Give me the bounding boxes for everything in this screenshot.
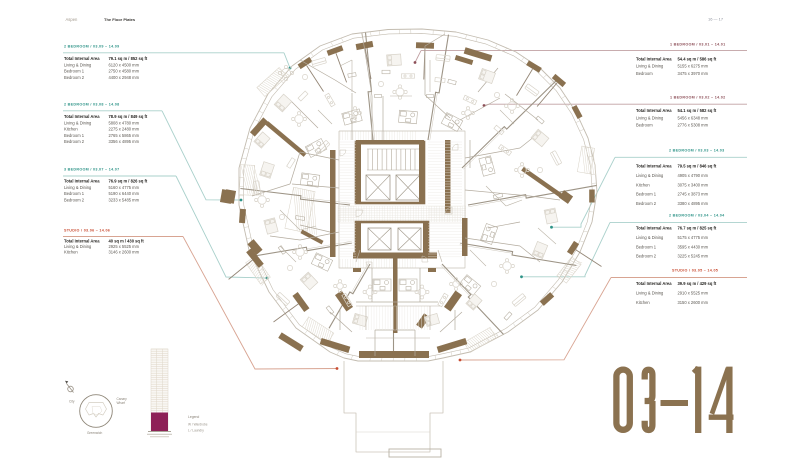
svg-text:Bedroom 1: Bedroom 1: [64, 133, 85, 138]
svg-text:Bedroom 2: Bedroom 2: [636, 201, 657, 206]
svg-text:Living & Dining: Living & Dining: [636, 235, 664, 240]
svg-text:2910 x 5525 mm: 2910 x 5525 mm: [678, 291, 709, 296]
svg-text:2275 x 2480 mm: 2275 x 2480 mm: [109, 127, 140, 132]
svg-text:Legend: Legend: [188, 415, 199, 419]
svg-text:Total Internal Area: Total Internal Area: [636, 164, 672, 169]
svg-text:2 BEDROOM / 03.04 – 14.04: 2 BEDROOM / 03.04 – 14.04: [669, 214, 725, 218]
svg-text:40 sq m / 430 sq ft: 40 sq m / 430 sq ft: [109, 238, 145, 243]
svg-text:79.5 sq m / 846 sq ft: 79.5 sq m / 846 sq ft: [678, 164, 717, 169]
svg-text:3233 x 5485 mm: 3233 x 5485 mm: [109, 197, 140, 202]
svg-text:The Floor Plates: The Floor Plates: [104, 17, 136, 22]
svg-text:3475 x 3970 mm: 3475 x 3970 mm: [678, 71, 709, 76]
svg-text:1 BEDROOM / 03.02 – 14.02: 1 BEDROOM / 03.02 – 14.02: [670, 96, 725, 100]
svg-text:Living & Dining: Living & Dining: [64, 120, 92, 125]
svg-text:3146 x 2600 mm: 3146 x 2600 mm: [109, 250, 140, 255]
svg-text:54.1 sq m / 582 sq ft: 54.1 sq m / 582 sq ft: [678, 108, 717, 113]
svg-text:Bedroom 1: Bedroom 1: [636, 244, 657, 249]
svg-text:2 BEDROOM / 03.08 – 14.08: 2 BEDROOM / 03.08 – 14.08: [64, 102, 119, 106]
svg-text:Living & Dining: Living & Dining: [636, 291, 664, 296]
svg-text:3225 x 5245 mm: 3225 x 5245 mm: [678, 254, 709, 259]
svg-text:4400 x 2948 mm: 4400 x 2948 mm: [109, 75, 140, 80]
svg-text:Bedroom 2: Bedroom 2: [64, 75, 85, 80]
svg-text:3 BEDROOM / 03.07 – 14.07: 3 BEDROOM / 03.07 – 14.07: [64, 168, 119, 172]
svg-text:39.9 sq m / 429 sq ft: 39.9 sq m / 429 sq ft: [678, 281, 717, 286]
svg-text:5456 x 6348 mm: 5456 x 6348 mm: [678, 115, 709, 120]
svg-text:Bedroom 1: Bedroom 1: [636, 192, 657, 197]
svg-text:Total Internal Area: Total Internal Area: [636, 281, 672, 286]
svg-text:4905 x 4790 mm: 4905 x 4790 mm: [678, 173, 709, 178]
svg-text:Kitchen: Kitchen: [64, 250, 78, 255]
svg-text:Living & Dining: Living & Dining: [64, 62, 92, 67]
svg-text:5175 x 4775 mm: 5175 x 4775 mm: [678, 235, 709, 240]
svg-text:Kitchen: Kitchen: [636, 182, 650, 187]
svg-text:Total Internal Area: Total Internal Area: [64, 56, 100, 61]
svg-text:3356 x 4895 mm: 3356 x 4895 mm: [109, 139, 140, 144]
svg-text:Bedroom 1: Bedroom 1: [64, 69, 85, 74]
svg-text:Total Internal Area: Total Internal Area: [636, 108, 672, 113]
svg-text:78.9 sq m / 849 sq ft: 78.9 sq m / 849 sq ft: [109, 114, 148, 119]
svg-text:2765 x 5865 mm: 2765 x 5865 mm: [109, 133, 140, 138]
svg-text:STUDIO / 03.05 – 14.05: STUDIO / 03.05 – 14.05: [672, 269, 718, 273]
svg-text:1 BEDROOM / 03.01 – 14.01: 1 BEDROOM / 03.01 – 14.01: [670, 42, 725, 46]
svg-text:54.4 sq m / 586 sq ft: 54.4 sq m / 586 sq ft: [678, 57, 717, 62]
svg-text:City: City: [69, 400, 75, 404]
svg-text:3150 x 2600 mm: 3150 x 2600 mm: [678, 300, 709, 305]
svg-text:76.9 sq m / 826 sq ft: 76.9 sq m / 826 sq ft: [109, 179, 148, 184]
svg-text:W / Wardrobe: W / Wardrobe: [188, 423, 208, 427]
svg-text:L / Laundry: L / Laundry: [188, 429, 204, 433]
svg-text:Living & Dining: Living & Dining: [64, 244, 92, 249]
svg-text:Total Internal Area: Total Internal Area: [636, 57, 672, 62]
svg-text:79.1 sq m / 852 sq ft: 79.1 sq m / 852 sq ft: [109, 56, 148, 61]
svg-text:Bedroom: Bedroom: [636, 123, 653, 128]
svg-text:Aspen: Aspen: [66, 17, 79, 22]
svg-text:Wharf: Wharf: [117, 401, 126, 405]
svg-text:6120 x 4500 mm: 6120 x 4500 mm: [109, 62, 140, 67]
svg-text:Total Internal Area: Total Internal Area: [64, 179, 100, 184]
svg-text:3595 x 4430 mm: 3595 x 4430 mm: [678, 244, 709, 249]
svg-text:Bedroom 2: Bedroom 2: [64, 197, 85, 202]
svg-text:Bedroom 1: Bedroom 1: [64, 191, 85, 196]
svg-text:Total Internal Area: Total Internal Area: [64, 114, 100, 119]
svg-text:Kitchen: Kitchen: [636, 300, 650, 305]
svg-text:76.7 sq m / 825 sq ft: 76.7 sq m / 825 sq ft: [678, 226, 717, 231]
svg-text:STUDIO / 03.06 – 14.06: STUDIO / 03.06 – 14.06: [64, 228, 110, 232]
svg-text:Living & Dining: Living & Dining: [636, 115, 664, 120]
svg-text:2745 x 3873 mm: 2745 x 3873 mm: [678, 192, 709, 197]
svg-text:Bedroom 2: Bedroom 2: [636, 254, 657, 259]
svg-text:Kitchen: Kitchen: [64, 127, 78, 132]
svg-text:3075 x 3400 mm: 3075 x 3400 mm: [678, 182, 709, 187]
svg-text:5155 x 6275 mm: 5155 x 6275 mm: [678, 64, 709, 69]
svg-text:Total Internal Area: Total Internal Area: [64, 238, 100, 243]
svg-text:5160 x 4775 mm: 5160 x 4775 mm: [109, 185, 140, 190]
svg-text:Living & Dining: Living & Dining: [636, 64, 664, 69]
svg-text:Total Internal Area: Total Internal Area: [636, 226, 672, 231]
svg-text:5190 x 6440 mm: 5190 x 6440 mm: [109, 191, 140, 196]
svg-text:5808 x 4780 mm: 5808 x 4780 mm: [109, 120, 140, 125]
svg-text:Living & Dining: Living & Dining: [64, 185, 92, 190]
svg-text:16 — 17: 16 — 17: [708, 17, 724, 22]
svg-text:2776 x 5308 mm: 2776 x 5308 mm: [678, 123, 709, 128]
svg-text:Greenwich: Greenwich: [87, 431, 102, 435]
svg-text:2 BEDROOM / 03.09 – 14.09: 2 BEDROOM / 03.09 – 14.09: [64, 44, 119, 48]
svg-text:2750 x 4580 mm: 2750 x 4580 mm: [109, 69, 140, 74]
svg-text:2 BEDROOM / 03.03 – 14.03: 2 BEDROOM / 03.03 – 14.03: [669, 149, 724, 153]
svg-text:Living & Dining: Living & Dining: [636, 173, 664, 178]
svg-text:2925 x 5525 mm: 2925 x 5525 mm: [109, 244, 140, 249]
svg-text:3380 x 4895 mm: 3380 x 4895 mm: [678, 201, 709, 206]
svg-text:Bedroom 2: Bedroom 2: [64, 139, 85, 144]
svg-text:Bedroom: Bedroom: [636, 71, 653, 76]
